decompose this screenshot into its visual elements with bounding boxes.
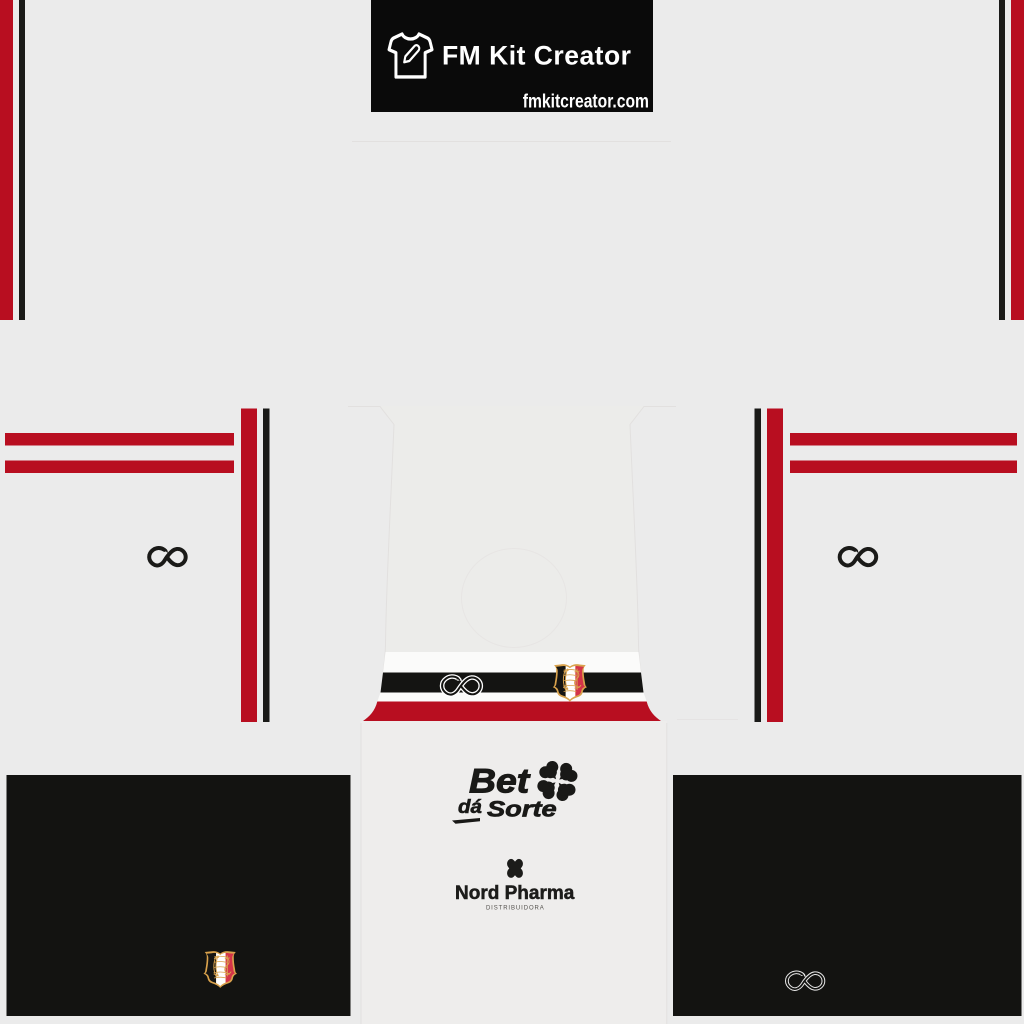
svg-text:Bet: Bet bbox=[469, 762, 531, 800]
svg-text:FM Kit Creator: FM Kit Creator bbox=[442, 41, 631, 71]
svg-text:fmkitcreator.com: fmkitcreator.com bbox=[523, 90, 649, 112]
svg-text:dá: dá bbox=[458, 796, 482, 817]
svg-text:Nord Pharma: Nord Pharma bbox=[455, 883, 575, 904]
svg-text:DISTRIBUIDORA: DISTRIBUIDORA bbox=[486, 906, 545, 912]
svg-text:Sorte: Sorte bbox=[487, 798, 557, 822]
